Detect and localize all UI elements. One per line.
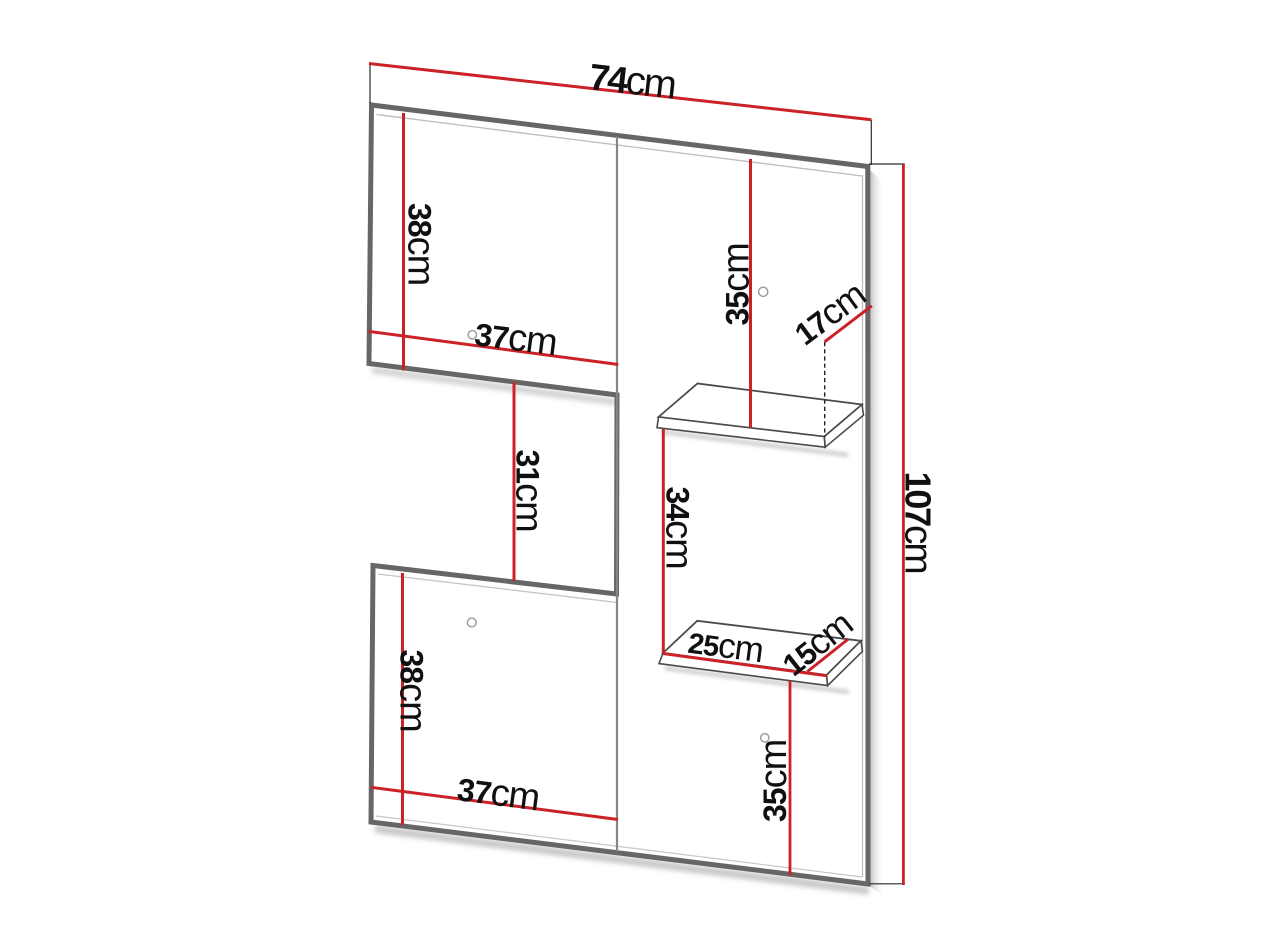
svg-text:31cm: 31cm: [508, 450, 550, 532]
svg-text:38cm: 38cm: [392, 650, 434, 732]
svg-text:35cm: 35cm: [753, 740, 795, 822]
svg-text:34cm: 34cm: [658, 487, 700, 569]
svg-text:107cm: 107cm: [897, 472, 940, 573]
svg-text:38cm: 38cm: [400, 203, 442, 285]
svg-text:35cm: 35cm: [716, 243, 758, 325]
